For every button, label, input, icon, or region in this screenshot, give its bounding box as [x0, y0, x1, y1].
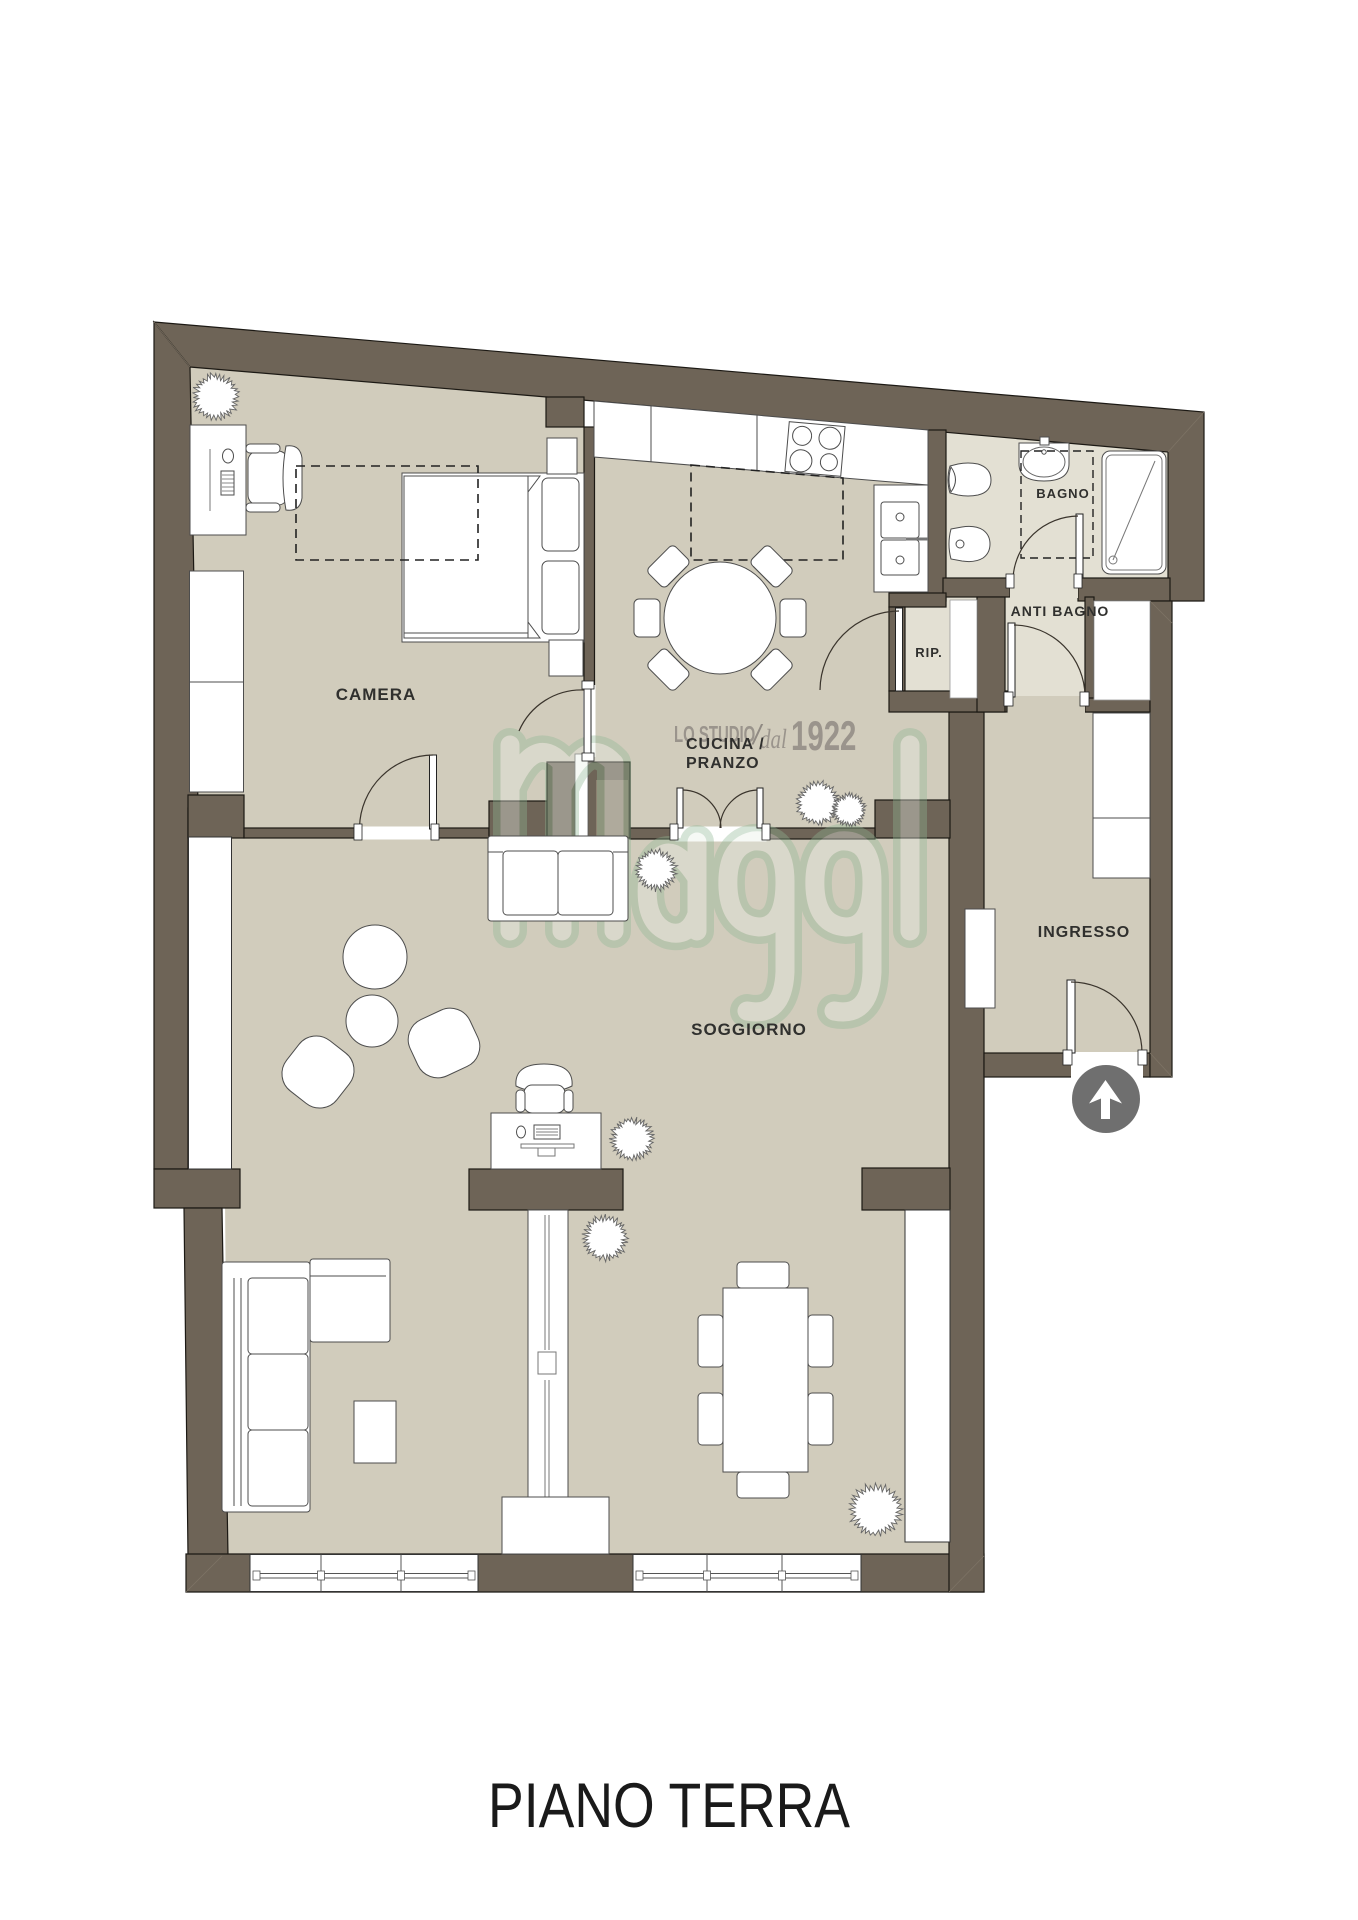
svg-text:1922: 1922 — [791, 712, 856, 760]
svg-text:CUCINA /: CUCINA / — [686, 736, 765, 753]
svg-text:BAGNO: BAGNO — [1036, 486, 1089, 501]
svg-text:CAMERA: CAMERA — [336, 685, 417, 704]
svg-text:INGRESSO: INGRESSO — [1038, 924, 1130, 941]
svg-text:SOGGIORNO: SOGGIORNO — [691, 1020, 807, 1039]
svg-text:PIANO TERRA: PIANO TERRA — [488, 1771, 850, 1841]
svg-text:RIP.: RIP. — [915, 645, 943, 660]
svg-text:PRANZO: PRANZO — [686, 755, 760, 772]
svg-text:ANTI BAGNO: ANTI BAGNO — [1011, 603, 1110, 619]
